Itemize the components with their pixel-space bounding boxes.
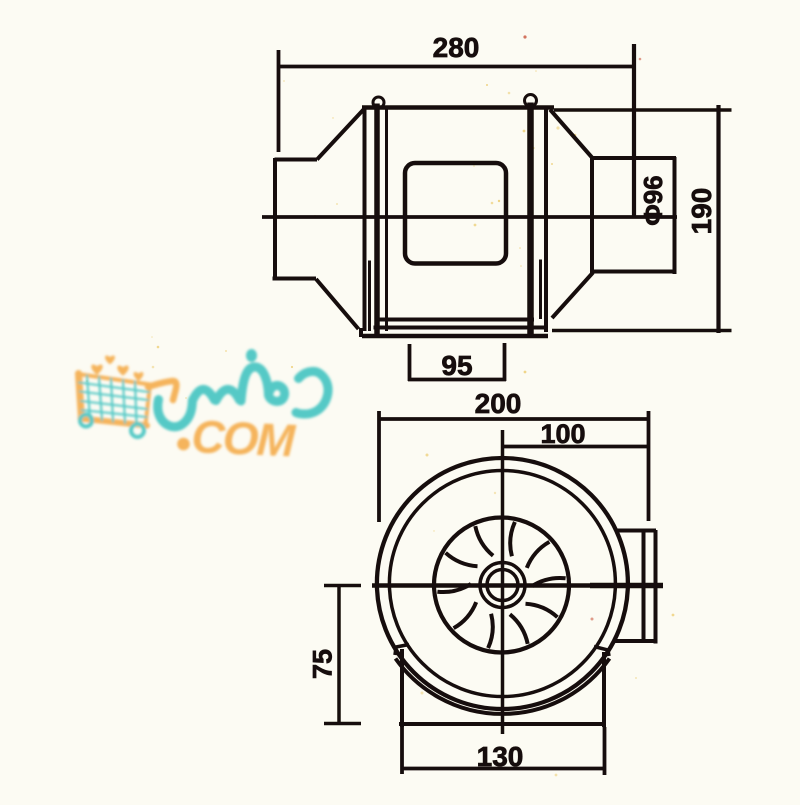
svg-text:COM: COM <box>191 410 298 467</box>
svg-text:Φ96: Φ96 <box>638 175 668 225</box>
svg-text:95: 95 <box>441 350 472 381</box>
svg-text:100: 100 <box>540 419 585 449</box>
svg-text:280: 280 <box>433 32 480 63</box>
svg-text:75: 75 <box>308 649 338 679</box>
svg-text:130: 130 <box>477 741 524 772</box>
svg-text:200: 200 <box>475 388 522 419</box>
svg-text:190: 190 <box>686 188 717 235</box>
